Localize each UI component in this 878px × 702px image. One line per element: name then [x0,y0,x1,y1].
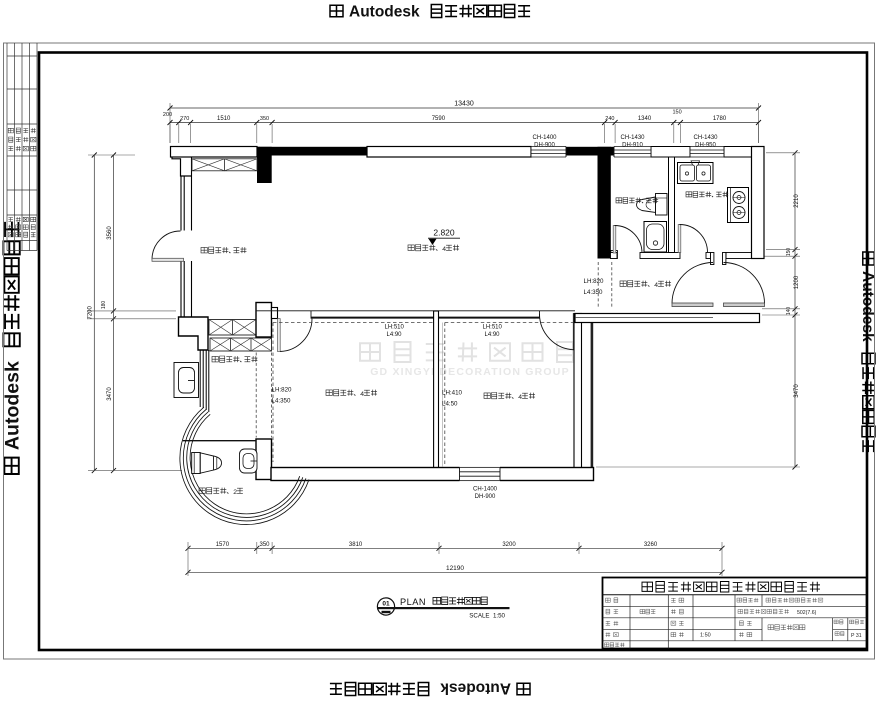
svg-text:1200: 1200 [794,275,800,289]
svg-text:4: 4 [360,391,364,398]
svg-text:4: 4 [442,246,446,253]
svg-text:240: 240 [605,116,614,122]
svg-text:7590: 7590 [432,116,446,122]
svg-text:CH-1430: CH-1430 [620,135,645,141]
svg-text:2: 2 [233,489,237,496]
svg-text:DH-900: DH-900 [534,143,555,149]
svg-text:PLAN: PLAN [400,597,426,607]
svg-text:3560: 3560 [107,226,113,240]
svg-text:180: 180 [101,301,107,310]
svg-text:P 31: P 31 [851,633,862,639]
svg-text:01: 01 [382,601,390,608]
svg-text:2.820: 2.820 [433,228,455,238]
svg-text:CH-1400: CH-1400 [473,487,498,493]
svg-text:3200: 3200 [502,542,516,548]
svg-text:4: 4 [518,394,522,401]
svg-text:4: 4 [654,282,658,289]
svg-text:L4:350: L4:350 [272,397,291,404]
svg-text:L4:90: L4:90 [485,332,501,338]
svg-text:LH:410: LH:410 [442,390,463,397]
svg-text:Autodesk: Autodesk [349,4,420,21]
svg-text:1570: 1570 [216,542,230,548]
svg-text:1780: 1780 [713,116,727,122]
svg-text:1340: 1340 [638,116,652,122]
svg-text:DH-910: DH-910 [622,143,643,149]
svg-text:2210: 2210 [794,194,800,208]
svg-text:3810: 3810 [349,542,363,548]
svg-text:150: 150 [786,248,792,257]
svg-text:140: 140 [786,307,792,316]
svg-text:150: 150 [673,110,682,116]
svg-text:L4:90: L4:90 [387,332,403,338]
svg-text:Autodesk: Autodesk [2,361,24,450]
svg-text:L4:350: L4:350 [584,289,603,296]
svg-text:502(7.6): 502(7.6) [797,610,817,616]
svg-text:12190: 12190 [446,565,464,572]
svg-text:CH-1430: CH-1430 [693,135,718,141]
svg-text:DH-900: DH-900 [475,494,496,500]
svg-text:CH-1400: CH-1400 [532,135,557,141]
svg-text:3470: 3470 [107,387,113,401]
svg-text:LH:820: LH:820 [584,278,605,285]
svg-text:7200: 7200 [88,305,94,319]
svg-text:1510: 1510 [217,116,231,122]
svg-text:270: 270 [180,116,189,122]
svg-text:350: 350 [259,542,270,548]
svg-text:1:50: 1:50 [700,632,711,638]
svg-text:LH:820: LH:820 [272,387,293,394]
svg-text:13430: 13430 [454,101,474,108]
svg-text:200: 200 [163,112,172,118]
svg-text:3260: 3260 [644,542,658,548]
svg-text:SCALE 1:50: SCALE 1:50 [469,613,505,620]
svg-text:L4:50: L4:50 [442,400,458,407]
svg-text:LH:510: LH:510 [385,325,405,331]
svg-text:Autodesk: Autodesk [440,680,511,697]
svg-text:GD XINGYI DECORATION GROUP: GD XINGYI DECORATION GROUP [370,366,570,378]
svg-text:3470: 3470 [794,384,800,398]
svg-text:LH:510: LH:510 [483,325,503,331]
svg-text:DH-950: DH-950 [695,143,716,149]
svg-text:350: 350 [260,116,269,122]
